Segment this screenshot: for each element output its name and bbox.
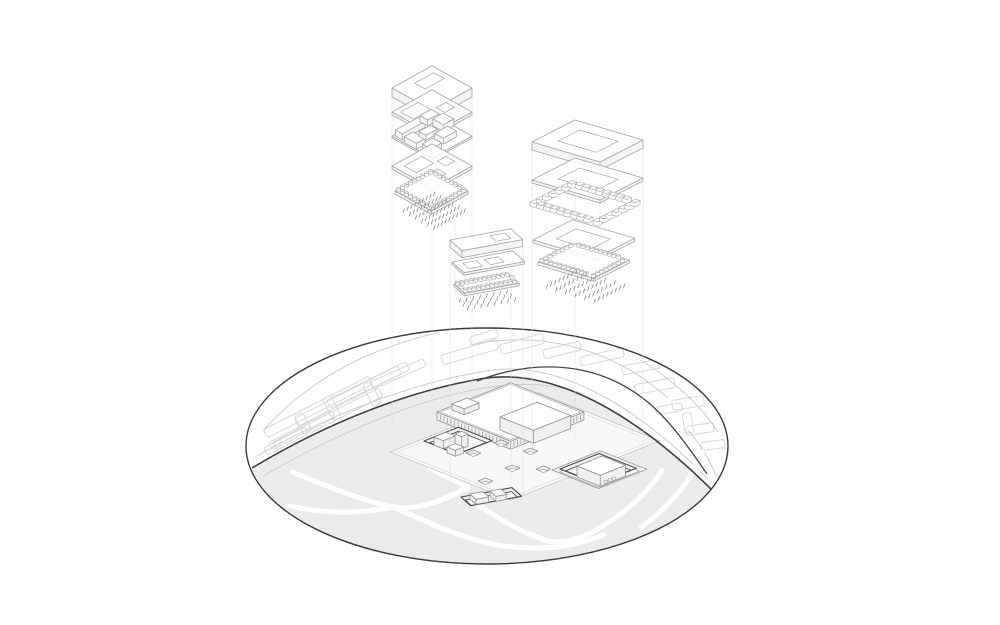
site-map-ellipse	[210, 328, 760, 625]
exploded-axonometric-diagram	[0, 0, 1000, 625]
floor-stack-right	[530, 120, 643, 303]
floor-stack-left	[392, 66, 472, 230]
diagram-canvas	[0, 0, 1000, 625]
floor-stack-middle	[450, 229, 525, 311]
